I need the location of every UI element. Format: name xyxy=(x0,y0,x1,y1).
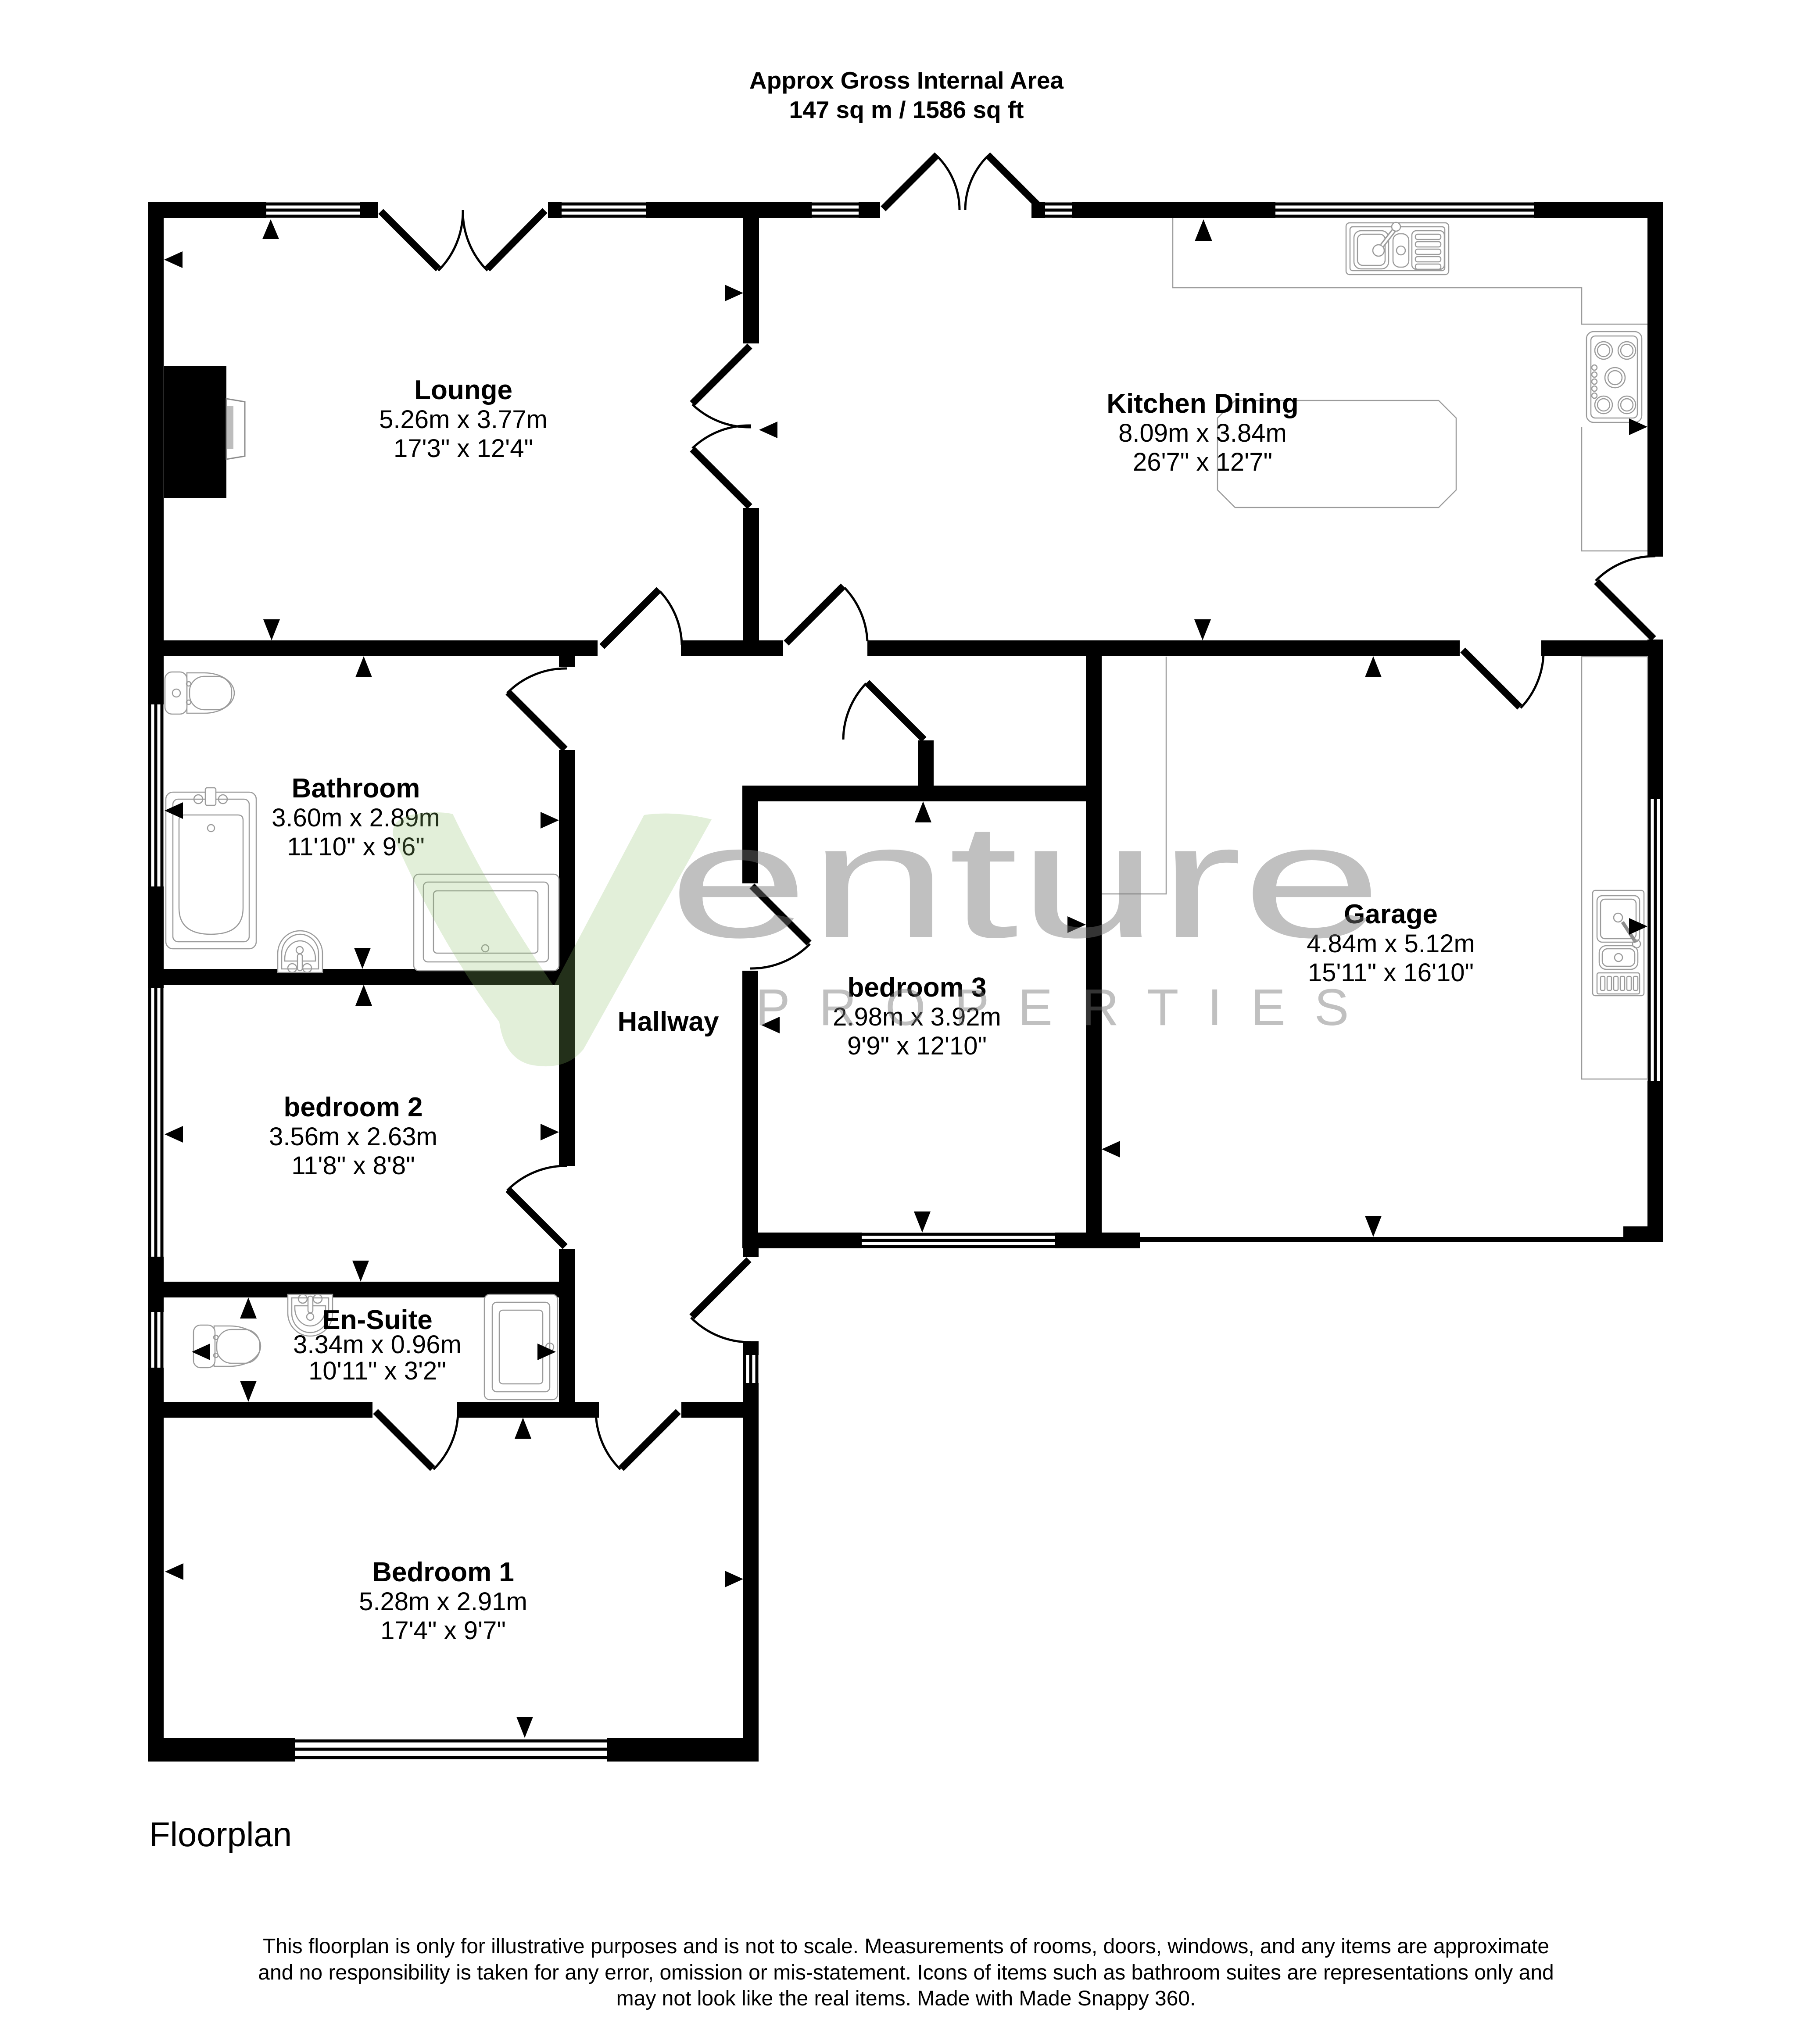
svg-text:This floorplan is only for ill: This floorplan is only for illustrative … xyxy=(263,1935,1549,1958)
svg-text:enture: enture xyxy=(669,790,1382,972)
svg-text:5.26m x 3.77m: 5.26m x 3.77m xyxy=(379,405,548,434)
svg-text:5.28m x 2.91m: 5.28m x 2.91m xyxy=(359,1587,527,1616)
svg-text:PROPERTIES: PROPERTIES xyxy=(756,979,1378,1036)
svg-text:Kitchen Dining: Kitchen Dining xyxy=(1107,389,1298,419)
svg-text:Lounge: Lounge xyxy=(414,375,512,405)
svg-text:Bedroom 1: Bedroom 1 xyxy=(372,1557,514,1587)
svg-text:10'11" x 3'2": 10'11" x 3'2" xyxy=(308,1357,446,1385)
svg-text:3.56m x 2.63m: 3.56m x 2.63m xyxy=(269,1122,437,1151)
svg-text:26'7" x 12'7": 26'7" x 12'7" xyxy=(1133,448,1272,476)
svg-text:147 sq m / 1586 sq ft: 147 sq m / 1586 sq ft xyxy=(789,96,1024,123)
svg-text:17'4" x 9'7": 17'4" x 9'7" xyxy=(380,1616,506,1645)
svg-text:Floorplan: Floorplan xyxy=(149,1815,292,1854)
svg-text:and no responsibility is taken: and no responsibility is taken for any e… xyxy=(258,1961,1554,1984)
svg-text:11'8" x 8'8": 11'8" x 8'8" xyxy=(291,1151,415,1180)
svg-text:Approx Gross Internal Area: Approx Gross Internal Area xyxy=(749,67,1064,94)
svg-text:3.34m x 0.96m: 3.34m x 0.96m xyxy=(293,1330,462,1359)
svg-text:Hallway: Hallway xyxy=(618,1007,719,1037)
svg-text:Bathroom: Bathroom xyxy=(292,773,420,804)
svg-text:17'3" x 12'4": 17'3" x 12'4" xyxy=(394,434,533,463)
svg-text:may not look like the real ite: may not look like the real items. Made w… xyxy=(616,1987,1196,2010)
svg-text:8.09m x 3.84m: 8.09m x 3.84m xyxy=(1118,419,1287,447)
svg-text:bedroom 2: bedroom 2 xyxy=(284,1092,423,1122)
